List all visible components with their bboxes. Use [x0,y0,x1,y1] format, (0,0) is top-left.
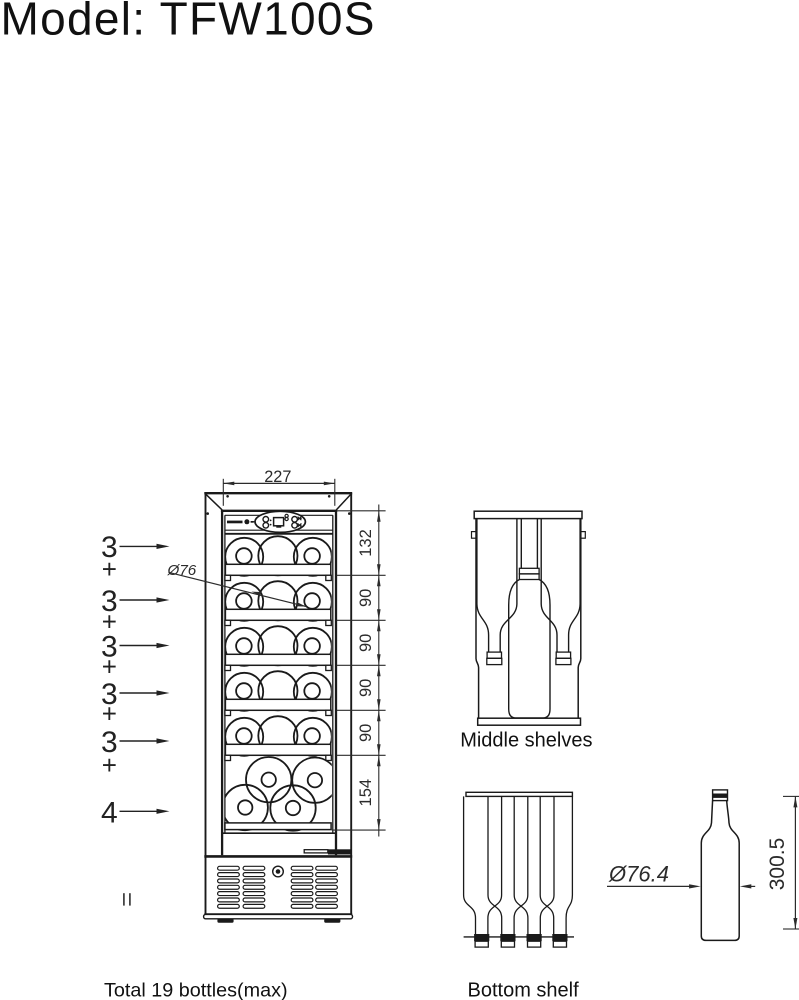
svg-text:Total 19 bottles(max): Total 19 bottles(max) [104,979,288,1000]
svg-text:+: + [102,607,117,637]
svg-text:154: 154 [357,779,375,807]
svg-text:90: 90 [357,589,375,607]
svg-text:Ø76.4: Ø76.4 [608,862,669,887]
svg-text:132: 132 [357,529,375,557]
svg-text:Bottom shelf: Bottom shelf [468,979,580,1000]
svg-text:+: + [102,699,117,729]
svg-text:4: 4 [101,796,118,829]
svg-text:Ø76: Ø76 [167,562,197,579]
svg-text:+: + [102,554,117,584]
svg-text:90: 90 [357,679,375,697]
svg-text:300.5: 300.5 [766,838,789,891]
svg-text:+: + [102,750,117,780]
svg-text:90: 90 [357,724,375,742]
svg-text:+: + [102,652,117,682]
svg-text:Middle shelves: Middle shelves [460,730,592,752]
svg-text:Model: TFW100S: Model: TFW100S [1,0,376,44]
svg-text:90: 90 [357,634,375,652]
